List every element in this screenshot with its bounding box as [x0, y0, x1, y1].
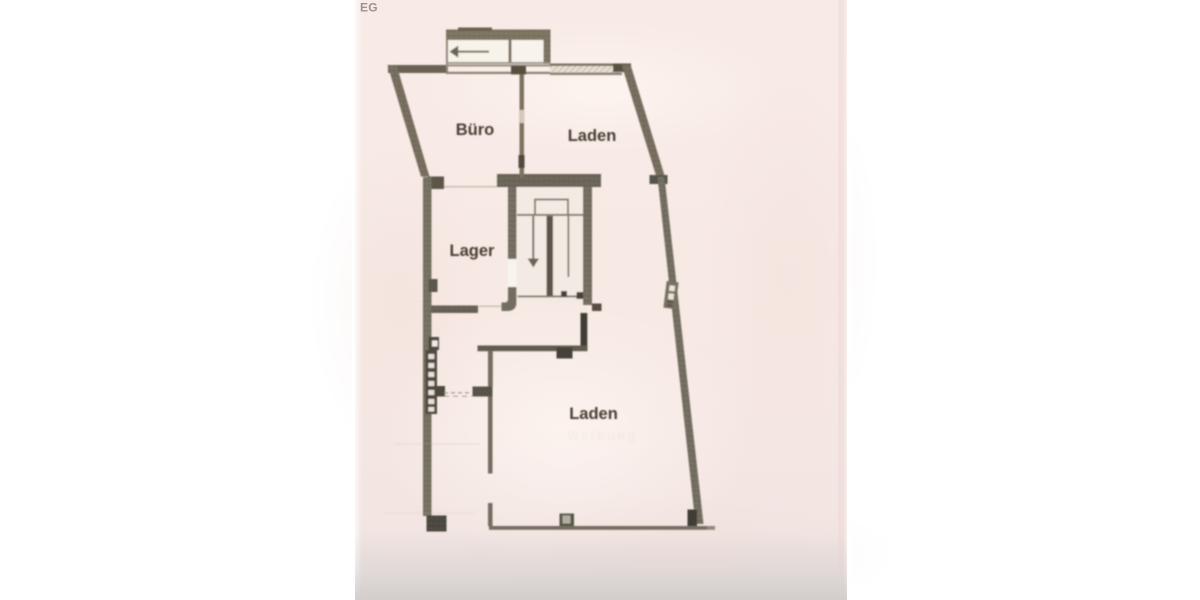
svg-text:Lager: Lager [450, 242, 496, 260]
svg-text:Laden: Laden [569, 405, 618, 423]
svg-text:Werbung: Werbung [567, 428, 637, 443]
svg-text:Büro: Büro [456, 121, 495, 139]
svg-text:EG: EG [360, 1, 378, 15]
svg-text:Laden: Laden [568, 127, 617, 145]
